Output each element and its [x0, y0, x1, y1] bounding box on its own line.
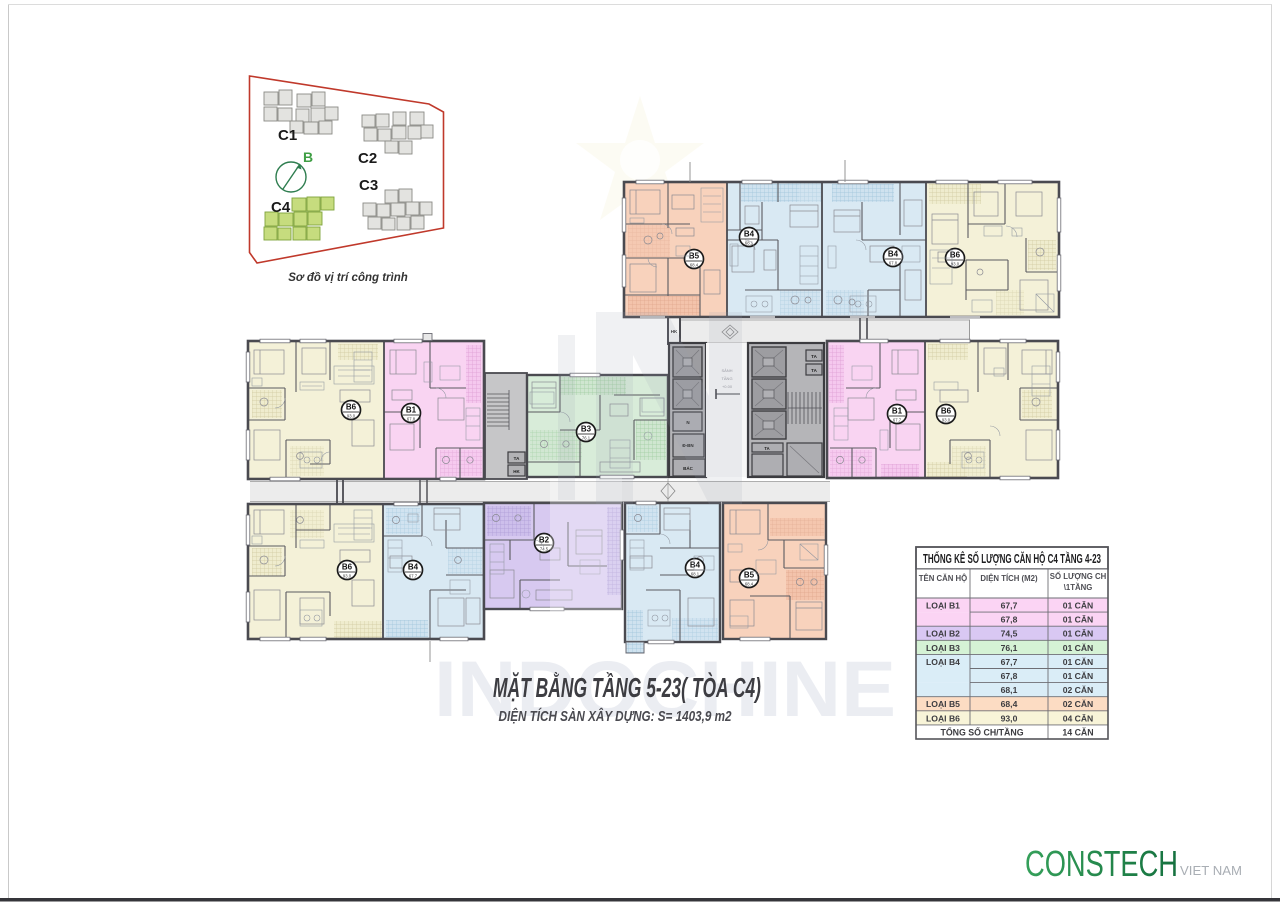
- svg-text:01 CĂN: 01 CĂN: [1063, 601, 1094, 611]
- svg-text:76.1: 76.1: [582, 436, 591, 441]
- svg-text:68.1: 68.1: [691, 572, 700, 577]
- svg-text:B6: B6: [950, 251, 961, 260]
- svg-text:76,1: 76,1: [1001, 643, 1018, 653]
- svg-text:B6: B6: [346, 403, 357, 412]
- svg-text:68.4: 68.4: [745, 582, 754, 587]
- svg-text:C1: C1: [278, 127, 297, 144]
- svg-text:B5: B5: [689, 252, 700, 261]
- svg-text:TA: TA: [764, 446, 769, 451]
- svg-text:74.5: 74.5: [540, 547, 549, 552]
- svg-text:01 CĂN: 01 CĂN: [1063, 629, 1094, 639]
- svg-text:01 CĂN: 01 CĂN: [1063, 657, 1094, 667]
- svg-text:B4: B4: [408, 563, 419, 572]
- svg-text:67,8: 67,8: [1001, 615, 1018, 625]
- svg-text:DIỆN TÍCH SÀN XÂY DỰNG: S= 140: DIỆN TÍCH SÀN XÂY DỰNG: S= 1403,9 m2: [499, 707, 733, 725]
- svg-text:VIET NAM: VIET NAM: [1180, 863, 1242, 878]
- svg-text:LOẠI B1: LOẠI B1: [926, 601, 960, 611]
- svg-text:02 CĂN: 02 CĂN: [1063, 685, 1094, 695]
- svg-text:B6: B6: [941, 407, 952, 416]
- svg-text:B: B: [303, 149, 313, 165]
- svg-text:C4: C4: [271, 199, 291, 216]
- svg-text:LOẠI B4: LOẠI B4: [926, 657, 960, 667]
- svg-text:C2: C2: [358, 150, 377, 167]
- svg-text:93.0: 93.0: [942, 418, 951, 423]
- svg-text:TỔNG SỐ CH/TẦNG: TỔNG SỐ CH/TẦNG: [940, 727, 1023, 738]
- svg-text:01 CĂN: 01 CĂN: [1063, 643, 1094, 653]
- svg-text:LOẠI B2: LOẠI B2: [926, 629, 960, 639]
- svg-text:93.0: 93.0: [347, 414, 356, 419]
- svg-text:SỐ LƯỢNG CH: SỐ LƯỢNG CH: [1050, 571, 1107, 581]
- svg-text:CONSTECH: CONSTECH: [1025, 843, 1178, 884]
- svg-text:LOẠI B5: LOẠI B5: [926, 699, 960, 709]
- svg-text:68.4: 68.4: [690, 263, 699, 268]
- svg-text:67.7: 67.7: [893, 418, 902, 423]
- svg-text:B2: B2: [539, 536, 550, 545]
- svg-text:MẶT BẰNG TẦNG 5-23( TÒA C4): MẶT BẰNG TẦNG 5-23( TÒA C4): [493, 672, 761, 703]
- svg-text:DIỆN TÍCH (M2): DIỆN TÍCH (M2): [980, 574, 1038, 583]
- svg-text:68,1: 68,1: [1001, 685, 1018, 695]
- svg-text:Sơ đồ vị trí công trình: Sơ đồ vị trí công trình: [288, 272, 408, 284]
- svg-text:74,5: 74,5: [1001, 629, 1018, 639]
- svg-text:\1TẦNG: \1TẦNG: [1064, 582, 1093, 592]
- svg-text:B4: B4: [744, 230, 755, 239]
- svg-text:TA: TA: [514, 456, 520, 461]
- svg-text:02 CĂN: 02 CĂN: [1063, 699, 1094, 709]
- svg-text:68,4: 68,4: [1001, 699, 1018, 709]
- svg-text:B5: B5: [744, 571, 755, 580]
- svg-text:67,7: 67,7: [1001, 601, 1018, 611]
- svg-text:B3: B3: [581, 425, 592, 434]
- svg-text:TA: TA: [811, 368, 817, 373]
- svg-text:67,8: 67,8: [1001, 671, 1018, 681]
- svg-text:LOẠI B6: LOẠI B6: [926, 713, 960, 723]
- svg-text:C3: C3: [359, 177, 378, 194]
- svg-text:TA: TA: [811, 354, 817, 359]
- svg-text:B1: B1: [892, 407, 903, 416]
- svg-text:HK: HK: [513, 469, 520, 474]
- svg-text:LOẠI B3: LOẠI B3: [926, 643, 960, 653]
- svg-text:14 CĂN: 14 CĂN: [1062, 728, 1093, 738]
- svg-text:THỐNG KÊ SỐ LƯỢNG CĂN HỘ C4 TẦ: THỐNG KÊ SỐ LƯỢNG CĂN HỘ C4 TẦNG 4-23: [923, 551, 1101, 566]
- svg-text:67.7: 67.7: [409, 574, 418, 579]
- svg-text:B6: B6: [342, 563, 353, 572]
- svg-text:B4: B4: [690, 561, 701, 570]
- svg-text:04 CĂN: 04 CĂN: [1063, 713, 1094, 723]
- svg-text:TÊN CĂN HỘ: TÊN CĂN HỘ: [919, 574, 968, 583]
- svg-text:67.8: 67.8: [889, 261, 898, 266]
- svg-text:67,7: 67,7: [1001, 657, 1018, 667]
- svg-text:67.8: 67.8: [407, 417, 416, 422]
- svg-text:93.0: 93.0: [343, 574, 352, 579]
- svg-text:B1: B1: [406, 406, 417, 415]
- svg-text:01 CĂN: 01 CĂN: [1063, 671, 1094, 681]
- svg-text:B4: B4: [888, 250, 899, 259]
- svg-text:01 CĂN: 01 CĂN: [1063, 615, 1094, 625]
- svg-text:93,0: 93,0: [1001, 713, 1018, 723]
